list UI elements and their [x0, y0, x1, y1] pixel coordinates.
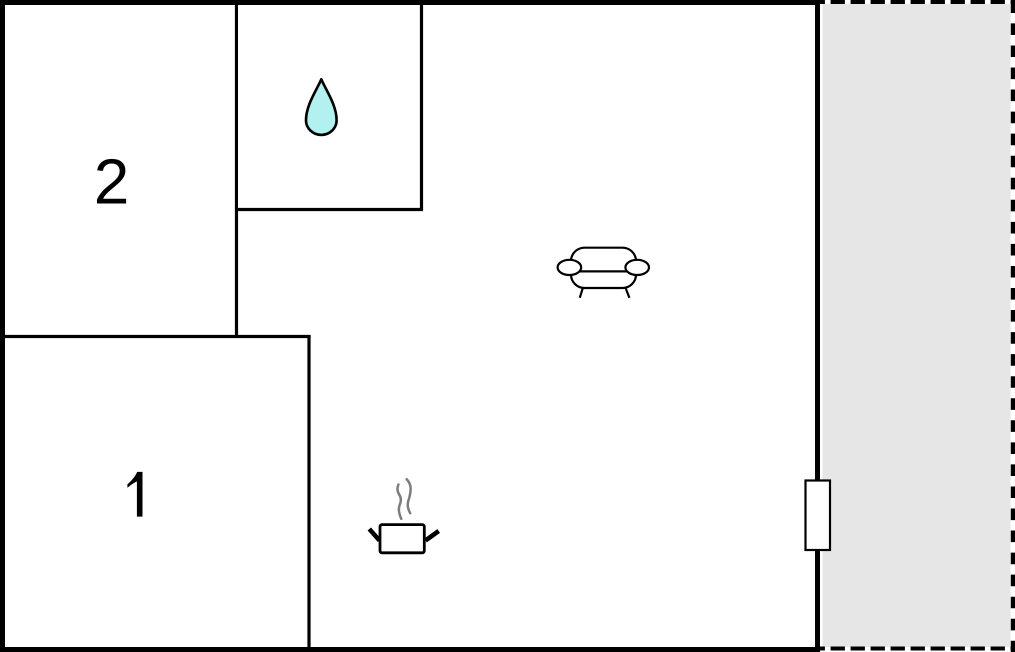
svg-text:2: 2: [94, 146, 130, 218]
